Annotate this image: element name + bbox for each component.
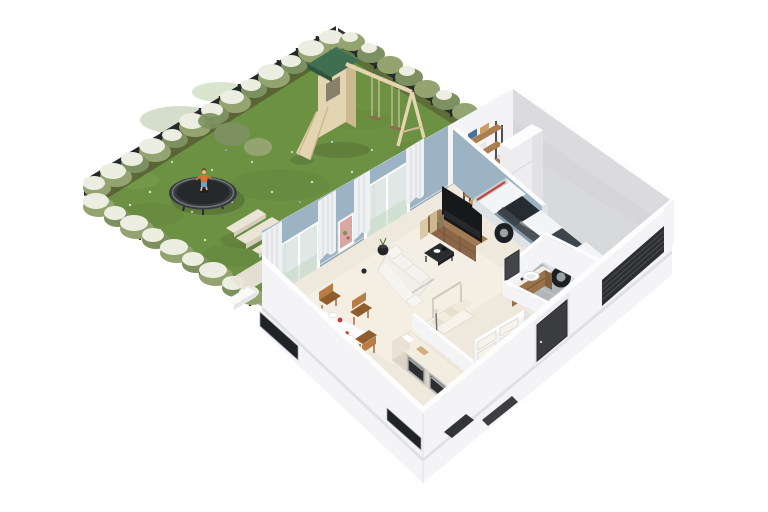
- floorplan-render: [0, 0, 768, 512]
- isometric-scene: [0, 0, 768, 512]
- red-bowl: [338, 318, 343, 323]
